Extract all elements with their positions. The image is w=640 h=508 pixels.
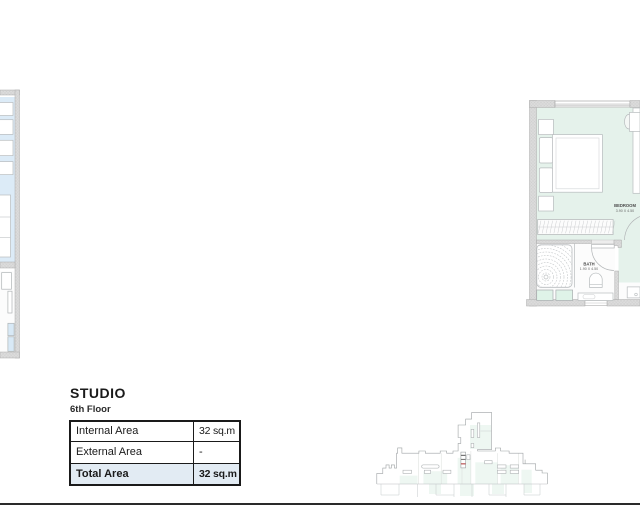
svg-text:BATH: BATH [583, 261, 594, 266]
svg-text:3.90 X 4.50: 3.90 X 4.50 [616, 209, 634, 213]
svg-text:BEDROOM: BEDROOM [614, 203, 636, 208]
svg-text:1.90 X 4.50: 1.90 X 4.50 [580, 267, 598, 271]
